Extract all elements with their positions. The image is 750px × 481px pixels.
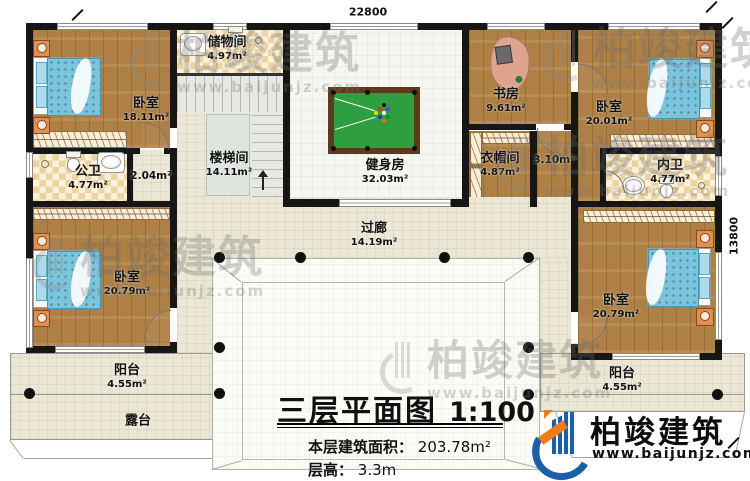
computer-monitor-icon: [495, 45, 513, 65]
window: [612, 353, 700, 360]
courtyard-inner-outline: [242, 282, 505, 460]
dimension-right-height: 13800: [728, 217, 741, 255]
column-dot: [214, 342, 225, 353]
nightstand-icon: [696, 308, 714, 326]
table-pocket: [412, 146, 417, 151]
dimension-top-width: 22800: [349, 6, 387, 19]
column-dot: [523, 342, 534, 353]
wall: [564, 124, 578, 130]
wall: [571, 92, 578, 207]
wall: [571, 344, 578, 360]
table-pocket: [412, 90, 417, 95]
wall: [170, 30, 177, 128]
room-label-stairwell: 楼梯间 14.11m²: [206, 152, 252, 178]
billiard-ball: [378, 107, 382, 111]
column-dot: [214, 388, 225, 399]
bed-pillow: [36, 279, 47, 301]
company-logo-icon: [532, 410, 588, 468]
wall: [451, 199, 469, 207]
table-pocket: [365, 90, 370, 95]
room-label-corridor: 过廊 14.19m²: [351, 222, 397, 248]
wall: [170, 342, 177, 353]
stair-treads-top: [177, 76, 283, 112]
room-label-hallway-small-right: 3.10m²: [533, 155, 574, 167]
bed-pillow: [699, 277, 710, 299]
billiard-ball: [386, 115, 390, 119]
window: [26, 258, 33, 348]
wardrobe-hatch: [33, 208, 170, 220]
room-label-balcony-left: 阳台 4.55m²: [107, 364, 146, 390]
window: [487, 23, 545, 30]
room-label-bedroom-top-left: 卧室 18.11m²: [123, 97, 169, 123]
terrace-left-outline: [9, 440, 24, 459]
room-label-cloakroom: 衣帽间 4.87m²: [480, 152, 519, 178]
towel-hook-icon: [698, 182, 705, 189]
bed-pillow: [700, 87, 711, 109]
room-label-bedroom-bottom-left: 卧室 20.79m²: [104, 271, 150, 297]
cue-line: [335, 117, 375, 130]
billiard-ball: [374, 111, 378, 115]
nightstand-icon: [696, 40, 714, 58]
logo-orange-corner: [544, 410, 553, 419]
floor-drain-icon: [41, 160, 49, 168]
billiard-ball: [382, 119, 386, 123]
nightstand-icon: [696, 120, 714, 138]
room-label-study: 书房 9.61m²: [486, 88, 525, 114]
floor-height-row: 层高： 3.3m: [308, 459, 396, 480]
window: [55, 346, 145, 353]
wardrobe-hatch: [482, 132, 530, 144]
wall: [26, 201, 177, 207]
column-dot: [295, 252, 306, 263]
terrace-left-outline: [24, 458, 220, 459]
room-label-hallway-small-left: 2.04m²: [130, 171, 171, 183]
room-label-bedroom-top-right: 卧室 20.01m²: [586, 101, 632, 127]
column-dot: [24, 388, 35, 399]
wall: [571, 207, 578, 312]
wall: [600, 148, 722, 154]
room-label-public-bathroom: 公卫 4.77m²: [68, 165, 107, 191]
sink-icon: [622, 176, 645, 195]
balcony-left-edge: [10, 394, 233, 395]
room-label-terrace: 露台: [125, 415, 151, 430]
column-dot: [712, 389, 723, 400]
floor-area-value: 203.78m²: [418, 438, 491, 456]
cue-line: [335, 98, 375, 111]
nightstand-icon: [33, 310, 50, 327]
floor-height-label: 层高：: [308, 461, 353, 479]
dimension-tick: [721, 17, 733, 29]
wall: [530, 131, 537, 207]
floor-area-label: 本层建筑面积：: [308, 438, 413, 456]
table-pocket: [365, 146, 370, 151]
window: [715, 156, 722, 196]
wall: [571, 201, 722, 207]
billiard-ball: [382, 103, 386, 107]
wall: [462, 30, 469, 206]
window: [26, 152, 33, 178]
window: [330, 23, 418, 30]
nightstand-icon: [696, 230, 714, 248]
floor-area-row: 本层建筑面积： 203.78m²: [308, 436, 491, 457]
title-underline: [277, 423, 503, 425]
balcony-right: [540, 353, 745, 412]
column-dot: [523, 252, 534, 263]
bed-pillow: [699, 253, 710, 275]
title-underline: [277, 427, 503, 428]
nightstand-icon: [33, 233, 50, 250]
walkway-left: [177, 258, 212, 353]
stair-arrow-head: [258, 170, 268, 177]
wall: [170, 207, 177, 308]
wall-divider: [177, 73, 283, 76]
bed-pillow: [36, 62, 47, 84]
bed-pillow: [36, 86, 47, 108]
stair-treads-right: [252, 112, 283, 197]
floor-drain-icon: [255, 37, 262, 44]
room-label-balcony-right: 阳台 4.55m²: [602, 367, 641, 393]
stair-hall-strip: [177, 112, 205, 197]
brand-website: www.baijunjz.com: [592, 446, 750, 462]
plant-icon: [515, 75, 523, 83]
wall: [462, 124, 536, 130]
column-dot: [439, 252, 450, 263]
bed-pillow: [700, 63, 711, 85]
table-pocket: [331, 146, 336, 151]
nightstand-icon: [33, 40, 50, 57]
room-label-gym: 健身房 32.03m²: [362, 159, 408, 185]
window: [57, 23, 148, 30]
window: [715, 252, 722, 340]
wall: [571, 30, 578, 62]
bed-pillow: [36, 255, 47, 277]
walkway-right: [540, 258, 571, 353]
table-pocket: [331, 90, 336, 95]
room-label-bedroom-bottom-right: 卧室 20.79m²: [593, 294, 639, 320]
floor-plan: 卧室 18.11m² 公卫 4.77m² 2.04m² 储物间 4.97m² 楼…: [0, 0, 750, 481]
window: [339, 199, 451, 207]
column-dot: [214, 252, 225, 263]
wardrobe-hatch: [583, 210, 715, 223]
billiard-ball: [386, 107, 390, 111]
wall: [283, 30, 290, 206]
dimension-tick: [705, 1, 717, 13]
stair-direction-arrow: [262, 176, 264, 190]
wall: [283, 199, 339, 207]
billiard-table-icon: [328, 87, 420, 154]
billiard-ball: [382, 111, 386, 115]
window: [608, 23, 700, 30]
room-label-ensuite-bathroom: 内卫 4.77m²: [650, 159, 689, 185]
floor-height-value: 3.3m: [358, 461, 396, 479]
dimension-tick: [71, 9, 83, 21]
sink-icon: [180, 33, 206, 56]
nightstand-icon: [33, 117, 50, 134]
room-label-storage: 储物间 4.97m²: [207, 36, 246, 62]
billiard-ball: [378, 115, 382, 119]
